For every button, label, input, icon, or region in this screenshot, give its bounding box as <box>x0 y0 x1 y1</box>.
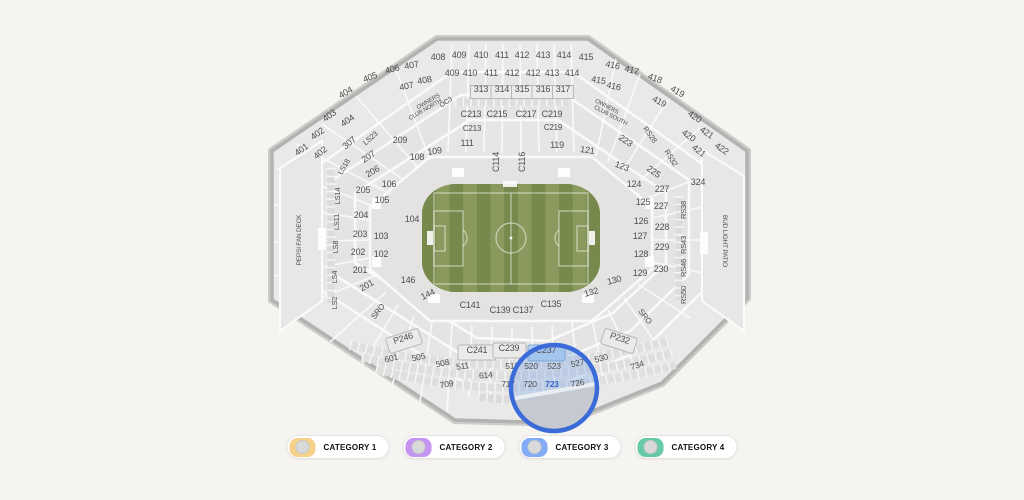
section-label[interactable]: 413 <box>545 68 560 78</box>
section-label[interactable]: 408 <box>431 52 446 62</box>
section-label[interactable]: 227 <box>655 184 670 194</box>
section-label[interactable]: 125 <box>636 197 651 207</box>
section-label[interactable]: LS2 <box>330 297 339 310</box>
section-label[interactable]: 121 <box>580 144 596 156</box>
section-label[interactable]: RS50 <box>679 286 688 304</box>
section-label[interactable]: C215 <box>487 109 508 119</box>
section-label[interactable]: 126 <box>634 216 649 226</box>
section-label[interactable]: 201 <box>353 265 368 275</box>
section-label[interactable]: C219 <box>542 109 563 119</box>
section-label[interactable]: C219 <box>544 123 563 132</box>
section-label[interactable]: 412 <box>505 68 520 78</box>
legend-category-2[interactable]: CATEGORY 2 <box>403 435 506 459</box>
section-label[interactable]: 411 <box>495 50 509 60</box>
deck-notch <box>318 228 326 250</box>
seating-map-page: 4014024034044054064074084094104114124134… <box>0 0 1024 500</box>
section-label[interactable]: RS38 <box>679 201 688 219</box>
section-label[interactable]: 412 <box>526 68 541 78</box>
section-label[interactable]: 317 <box>556 84 571 94</box>
section-label[interactable]: 102 <box>374 249 389 259</box>
section-label[interactable]: 119 <box>550 140 564 150</box>
section-label[interactable]: 205 <box>356 185 371 195</box>
section-label[interactable]: 414 <box>557 50 572 60</box>
section-label[interactable]: 108 <box>410 152 425 162</box>
section-label[interactable]: RS46 <box>679 259 688 277</box>
section-label[interactable]: 228 <box>655 222 670 232</box>
section-label[interactable]: C213 <box>461 109 482 119</box>
section-label[interactable]: 523 <box>547 361 561 371</box>
section-label[interactable]: LS4 <box>330 271 339 284</box>
section-label[interactable]: 314 <box>495 84 510 94</box>
category-legend: CATEGORY 1 CATEGORY 2 CATEGORY 3 CATEGOR… <box>287 435 738 459</box>
section-label[interactable]: 614 <box>479 369 494 380</box>
section-label[interactable]: 313 <box>474 84 489 94</box>
patio-notch <box>700 232 708 254</box>
section-label[interactable]: C217 <box>516 109 537 119</box>
soccer-field <box>422 181 600 292</box>
section-label[interactable]: 409 <box>452 50 467 60</box>
section-label[interactable]: 410 <box>463 68 478 78</box>
section-label[interactable]: LS14 <box>333 188 342 205</box>
legend-category-3-label: CATEGORY 3 <box>548 443 619 452</box>
section-label[interactable]: 104 <box>405 214 420 224</box>
section-label[interactable]: 203 <box>353 229 368 239</box>
category-2-swatch <box>406 438 432 457</box>
section-label[interactable]: 511 <box>455 360 470 372</box>
section-label[interactable]: 202 <box>351 247 366 257</box>
section-label[interactable]: 128 <box>634 249 649 259</box>
section-label[interactable]: BUD LIGHT PATIO <box>721 215 728 267</box>
section-label[interactable]: C141 <box>460 300 481 310</box>
section-label[interactable]: 315 <box>515 84 530 94</box>
legend-category-1[interactable]: CATEGORY 1 <box>287 435 390 459</box>
section-label[interactable]: 411 <box>484 68 498 78</box>
section-label[interactable]: 410 <box>474 50 489 60</box>
section-label[interactable]: 415 <box>579 52 594 62</box>
section-label[interactable]: C114 <box>491 152 501 172</box>
category-4-dot <box>643 440 657 454</box>
section-label[interactable]: 316 <box>536 84 551 94</box>
section-label[interactable]: 146 <box>401 275 416 285</box>
stadium-map[interactable]: 4014024034044054064074084094104114124134… <box>0 0 1024 500</box>
section-label[interactable]: PEPSI FAN DECK <box>296 214 303 266</box>
section-label[interactable]: 414 <box>565 68 580 78</box>
legend-category-4[interactable]: CATEGORY 4 <box>634 435 737 459</box>
section-label[interactable]: 127 <box>633 231 648 241</box>
pepsi-fan-deck-panel[interactable] <box>280 141 326 331</box>
section-label[interactable]: 413 <box>536 50 551 60</box>
section-label[interactable]: 204 <box>354 210 369 220</box>
section-label[interactable]: LS11 <box>332 214 341 230</box>
section-label[interactable]: 129 <box>633 268 648 278</box>
section-label[interactable]: 103 <box>374 231 389 241</box>
category-2-dot <box>412 440 426 454</box>
section-label[interactable]: 124 <box>627 179 642 189</box>
category-1-dot <box>296 440 310 454</box>
section-label[interactable]: C139 <box>490 305 511 315</box>
section-label[interactable]: 720 <box>523 379 537 389</box>
legend-category-4-label: CATEGORY 4 <box>663 443 734 452</box>
section-label[interactable]: C135 <box>541 299 562 309</box>
category-1-swatch <box>290 438 316 457</box>
section-label[interactable]: 227 <box>654 201 669 211</box>
section-label[interactable]: 105 <box>375 195 390 205</box>
section-label[interactable]: C116 <box>517 152 527 172</box>
section-label[interactable]: RS43 <box>679 236 688 254</box>
section-label[interactable]: C137 <box>513 305 534 315</box>
legend-category-1-label: CATEGORY 1 <box>316 443 387 452</box>
section-label[interactable]: 412 <box>515 50 530 60</box>
section-label[interactable]: 723 <box>545 379 559 389</box>
section-label[interactable]: 409 <box>445 68 460 78</box>
section-label[interactable]: 106 <box>382 179 397 189</box>
category-4-swatch <box>637 438 663 457</box>
section-label[interactable]: 324 <box>691 177 706 187</box>
category-3-dot <box>528 440 542 454</box>
section-label[interactable]: 111 <box>460 138 473 148</box>
section-label[interactable]: C213 <box>463 124 482 133</box>
section-label[interactable]: 230 <box>654 264 669 274</box>
legend-category-2-label: CATEGORY 2 <box>432 443 503 452</box>
section-label[interactable]: 209 <box>393 135 408 145</box>
section-label[interactable]: 520 <box>524 361 538 371</box>
category-3-swatch <box>522 438 548 457</box>
section-label[interactable]: C241 <box>467 345 488 355</box>
section-label[interactable]: 109 <box>427 145 443 157</box>
section-label[interactable]: LS8 <box>331 241 340 254</box>
section-label[interactable]: 229 <box>655 242 670 252</box>
legend-category-3[interactable]: CATEGORY 3 <box>519 435 622 459</box>
section-label[interactable]: C239 <box>499 343 520 353</box>
